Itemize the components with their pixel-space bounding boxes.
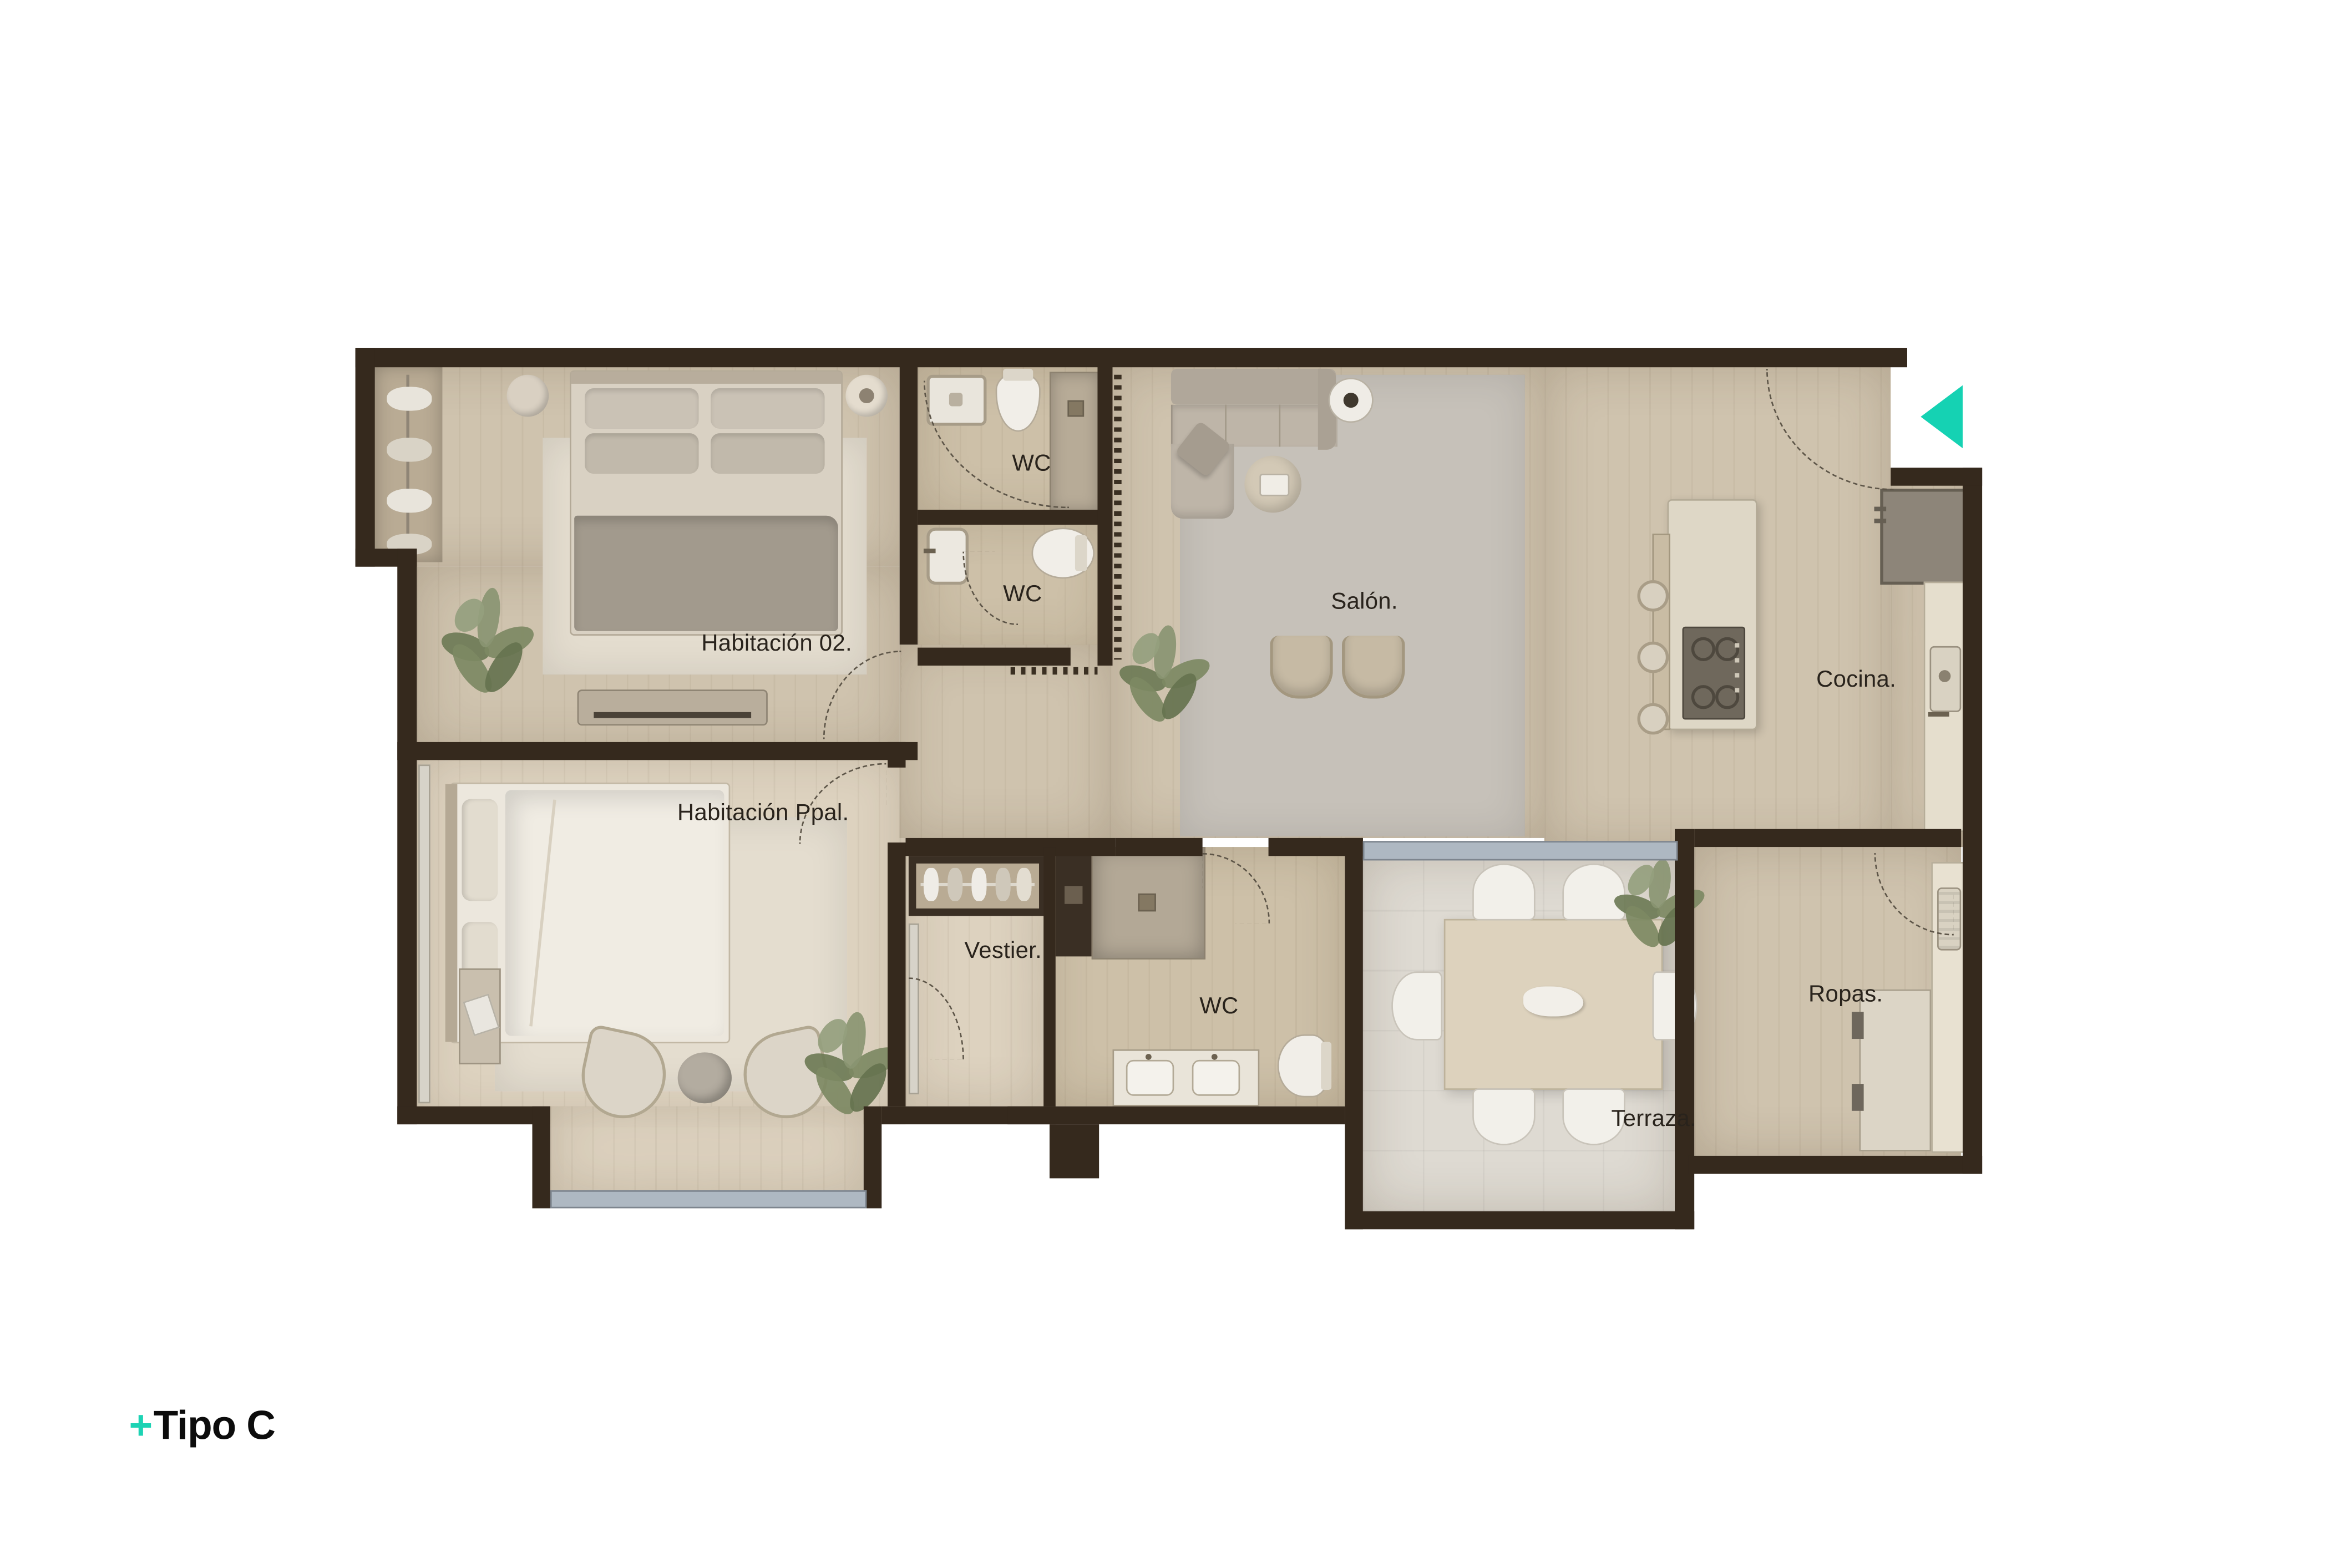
closet-habitacion-02 xyxy=(375,366,443,562)
coffee-table xyxy=(1244,456,1301,513)
wc3-duct xyxy=(1056,847,1092,956)
plant-habitacion-02 xyxy=(444,591,534,704)
island-stool-3 xyxy=(1637,703,1669,735)
hatch-below-wc2 xyxy=(1011,667,1098,675)
half-wall-hatch xyxy=(1114,375,1122,660)
room-label-wc-3: WC xyxy=(1199,994,1238,1021)
island-stool-2 xyxy=(1637,642,1669,673)
wall-entry-stub xyxy=(1891,468,1982,485)
logo-plus-icon: + xyxy=(129,1403,152,1448)
floorplan-canvas: Habitación 02. WC WC Salón. Cocina. Habi… xyxy=(0,0,2351,1568)
plan-type-logo: +Tipo C xyxy=(129,1403,275,1450)
wall-ropas-top xyxy=(1694,829,1961,847)
entry-arrow-icon xyxy=(1921,385,1963,449)
wall-bay-left xyxy=(532,1107,550,1209)
bedside-table-habppal xyxy=(459,968,501,1064)
bedside-disc-right xyxy=(845,375,888,417)
wall-habppal-right-a xyxy=(888,742,905,768)
wc3-toilet xyxy=(1278,1034,1331,1098)
mirror-strip-habppal xyxy=(418,764,430,1103)
room-label-salon: Salón. xyxy=(1331,589,1397,616)
wall-left-lower xyxy=(397,549,417,1124)
floorplan-stage: Habitación 02. WC WC Salón. Cocina. Habi… xyxy=(0,0,2351,1568)
bedside-disc-left xyxy=(507,375,549,417)
room-label-habitacion-02: Habitación 02. xyxy=(701,631,852,658)
wall-bottom-wc3 xyxy=(1007,1107,1345,1124)
cooktop xyxy=(1683,627,1746,720)
wall-hab02-right xyxy=(900,366,918,645)
room-label-wc-1: WC xyxy=(1012,451,1051,479)
wall-left-upper xyxy=(356,348,375,567)
wall-vestier-right xyxy=(1043,847,1056,1107)
bay-window-glass xyxy=(550,1190,867,1208)
kitchen-bar-ledge xyxy=(1652,534,1670,730)
wall-terraza-left xyxy=(1345,838,1362,1229)
dining-chair-top-1 xyxy=(1472,864,1536,921)
kitchen-counter-right xyxy=(1924,582,1966,832)
room-label-vestier: Vestier. xyxy=(964,938,1042,966)
wall-ropas-bottom xyxy=(1688,1156,1982,1174)
wc2-toilet xyxy=(1032,527,1095,579)
wall-top xyxy=(356,348,1907,367)
wall-terraza-bottom xyxy=(1345,1211,1694,1229)
wall-hab02-bottom xyxy=(397,742,918,760)
armchair-right xyxy=(1342,636,1405,699)
wc3-shower xyxy=(1092,847,1205,960)
terraza-sliding-glass xyxy=(1363,841,1678,860)
washer-dryer xyxy=(1859,989,1931,1151)
plant-salon xyxy=(1122,627,1209,732)
logo-name: Tipo C xyxy=(154,1403,275,1448)
wc3-double-sink xyxy=(1112,1049,1259,1107)
wall-bottom-bedroom xyxy=(397,1107,550,1124)
dining-chair-left xyxy=(1391,971,1442,1040)
armchair-left xyxy=(1270,636,1333,699)
ottoman xyxy=(678,1052,732,1103)
wall-habppal-right-b xyxy=(888,843,905,1107)
media-console-habitacion-02 xyxy=(577,689,768,725)
wall-wc3-top-a xyxy=(1116,838,1203,856)
bed-habitacion-02 xyxy=(570,371,843,636)
wall-wc2-bottom xyxy=(918,648,1071,666)
room-label-wc-2: WC xyxy=(1003,582,1042,609)
wall-right xyxy=(1963,468,1982,1174)
room-label-terraza: Terraza. xyxy=(1611,1107,1696,1134)
room-label-habitacion-ppal: Habitación Ppal. xyxy=(677,800,849,828)
wall-vestier-top xyxy=(905,838,1115,856)
wall-duct-protrusion xyxy=(1050,1124,1099,1178)
side-table-lamp xyxy=(1329,378,1374,423)
vestier-wardrobe xyxy=(909,856,1047,916)
room-label-cocina: Cocina. xyxy=(1816,667,1896,694)
wall-wc-divider xyxy=(918,510,1109,525)
wall-wc3-top-b xyxy=(1269,838,1363,856)
fridge xyxy=(1880,489,1967,585)
wall-wc-block-right xyxy=(1097,366,1112,666)
dining-chair-bottom-1 xyxy=(1472,1088,1536,1145)
room-label-ropas: Ropas. xyxy=(1808,982,1883,1009)
island-stool-1 xyxy=(1637,580,1669,612)
